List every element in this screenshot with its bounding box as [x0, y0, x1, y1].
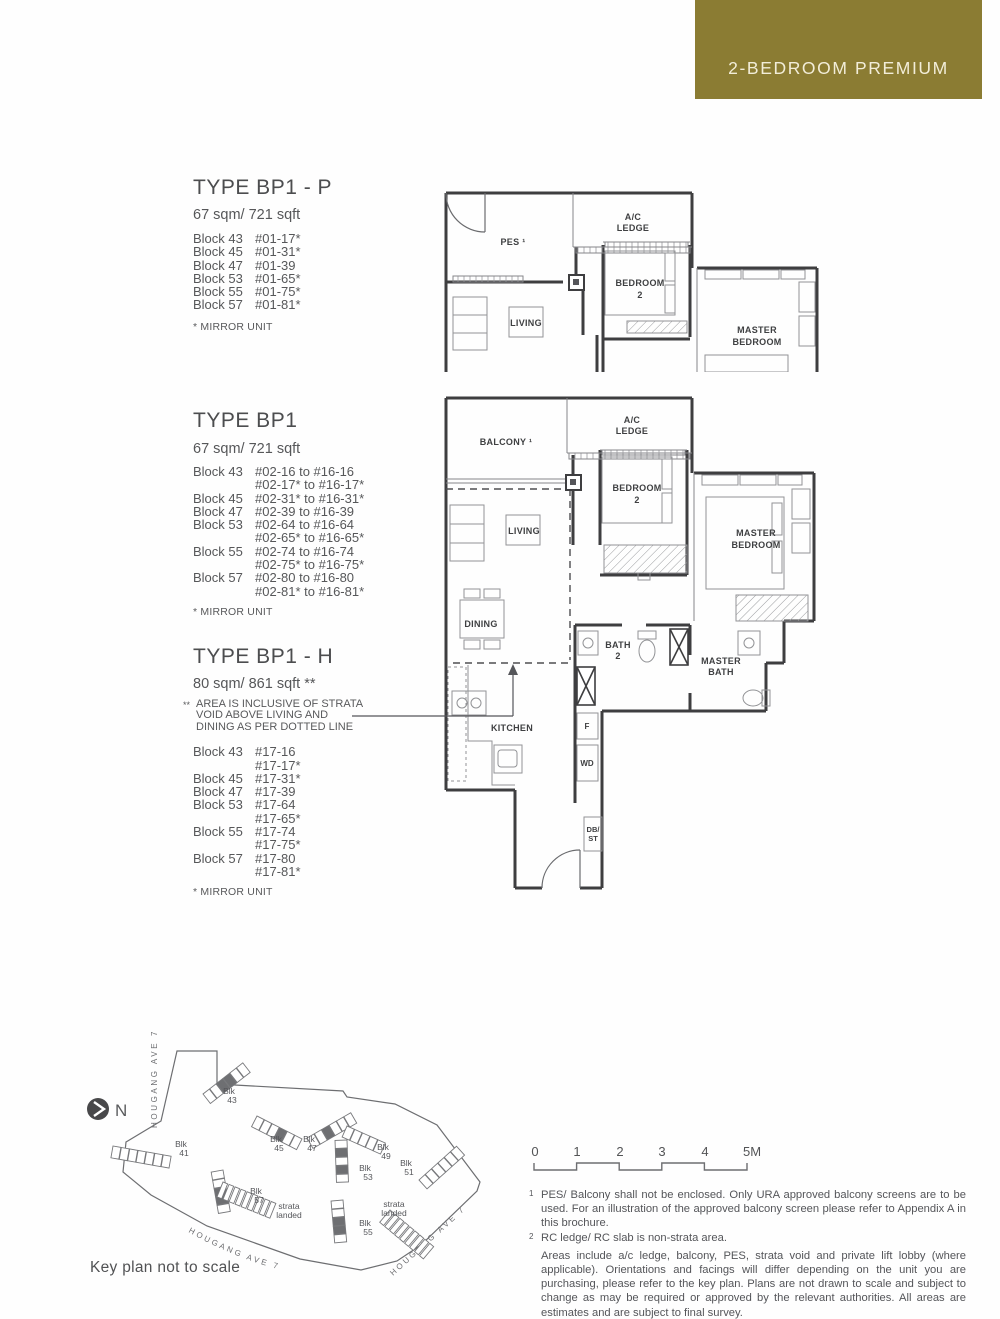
brochure-page: 2-BEDROOM PREMIUM TYPE BP1 - P 67 sqm/ 7… — [0, 0, 1000, 1319]
unit-number: #17-16 — [255, 745, 403, 758]
room-label-balcony: BALCONY ¹ — [480, 437, 533, 447]
entry-door-arc — [542, 850, 580, 888]
room-label-bath2: BATH2 — [605, 640, 631, 661]
unit-block-label: Block 57 — [193, 571, 255, 584]
room-label-bedroom2: BEDROOM2 — [612, 483, 661, 505]
unit-number: #17-75* — [255, 838, 403, 851]
room-label-master-bedroom: MASTERBEDROOM — [731, 528, 780, 550]
mirror-unit-note: * MIRROR UNIT — [193, 606, 403, 618]
type-bp1p-section: TYPE BP1 - P 67 sqm/ 721 sqft Block 43 #… — [193, 176, 403, 333]
label-fridge: F — [585, 722, 590, 731]
unit-number: #17-17* — [255, 759, 403, 772]
unit-block-label: Block 57 — [193, 298, 255, 311]
unit-number: #17-81* — [255, 865, 403, 878]
label-washer-dryer: WD — [580, 759, 594, 768]
footnote-text: Areas include a/c ledge, balcony, PES, s… — [541, 1250, 966, 1319]
unit-block-label: Block 43 — [193, 232, 255, 245]
unit-block-label — [193, 759, 255, 772]
strata-void-leader-arrow — [348, 655, 528, 725]
unit-number: #02-31* to #16-31* — [255, 492, 403, 505]
mirror-unit-note: * MIRROR UNIT — [193, 321, 403, 333]
room-label-master-bath: MASTERBATH — [701, 656, 741, 677]
mirror-unit-note: * MIRROR UNIT — [183, 886, 403, 898]
room-label-ac-ledge: A/CLEDGE — [616, 415, 649, 436]
unit-number: #02-80 to #16-80 — [255, 571, 403, 584]
unit-type-badge-label: 2-BEDROOM PREMIUM — [728, 58, 949, 79]
strata-landed-label: stratalanded — [381, 1199, 407, 1218]
room-label-dining: DINING — [464, 619, 497, 629]
unit-number: #17-80 — [255, 852, 403, 865]
unit-list: Block 43 #17-16 #17-17* Block 45 #17-31*… — [183, 745, 403, 878]
scale-label: 3 — [658, 1144, 665, 1159]
room-label-ac-ledge: A/CLEDGE — [617, 212, 650, 233]
unit-type-badge: 2-BEDROOM PREMIUM — [695, 0, 982, 99]
unit-block-label — [193, 838, 255, 851]
door-marker — [566, 475, 581, 490]
room-label-master-bedroom: MASTERBEDROOM — [732, 325, 781, 347]
unit-block-label: Block 53 — [193, 798, 255, 811]
type-title: TYPE BP1 - P — [193, 176, 403, 200]
unit-block-label: Block 57 — [193, 852, 255, 865]
unit-block-label — [193, 478, 255, 491]
block-label-41: Blk41 — [175, 1139, 189, 1158]
footnote-general: Areas include a/c ledge, balcony, PES, s… — [528, 1249, 966, 1319]
room-label-living: LIVING — [508, 526, 540, 536]
unit-block-label: Block 45 — [193, 772, 255, 785]
unit-block-label: Block 45 — [193, 245, 255, 258]
room-label-living: LIVING — [510, 318, 542, 328]
unit-number: #02-39 to #16-39 — [255, 505, 403, 518]
type-bp1-section: TYPE BP1 67 sqm/ 721 sqft Block 43 #02-1… — [193, 409, 403, 618]
unit-number: #17-74 — [255, 825, 403, 838]
unit-block-label: Block 55 — [193, 285, 255, 298]
footnote-2: 2 RC ledge/ RC slab is non-strata area. — [528, 1231, 966, 1245]
unit-number: #02-81* to #16-81* — [255, 585, 403, 598]
footnote-text: RC ledge/ RC slab is non-strata area. — [541, 1232, 727, 1244]
unit-number: #17-65* — [255, 812, 403, 825]
road-label-hougang-ave7: HOUGANG AVE 7 — [150, 1030, 159, 1128]
unit-block-label: Block 53 — [193, 518, 255, 531]
scale-label: 4 — [701, 1144, 708, 1159]
unit-number: #17-64 — [255, 798, 403, 811]
scale-bar: 0 1 2 3 4 5M — [533, 1144, 783, 1178]
floorplan-bp1p-drawing: PES ¹ A/CLEDGE BEDROOM2 LIVING MASTERBED… — [443, 185, 833, 372]
door-marker — [569, 275, 584, 290]
scale-label: 1 — [573, 1144, 580, 1159]
scale-label: 0 — [531, 1144, 538, 1159]
north-label: N — [115, 1101, 127, 1120]
unit-number: #01-65* — [255, 272, 403, 285]
block-label-43: Blk43 — [223, 1086, 237, 1105]
unit-block-label — [193, 865, 255, 878]
unit-number: #02-74 to #16-74 — [255, 545, 403, 558]
unit-number: #02-75* to #16-75* — [255, 558, 403, 571]
scale-label: 5M — [743, 1144, 761, 1159]
unit-number: #02-17* to #16-17* — [255, 478, 403, 491]
unit-number: #01-31* — [255, 245, 403, 258]
unit-number: #02-65* to #16-65* — [255, 531, 403, 544]
block-label-51: Blk51 — [400, 1158, 414, 1177]
room-label-pes: PES ¹ — [500, 237, 525, 247]
unit-number: #01-75* — [255, 285, 403, 298]
unit-number: #17-31* — [255, 772, 403, 785]
type-area: 67 sqm/ 721 sqft — [193, 441, 403, 457]
footnote-1: 1 PES/ Balcony shall not be enclosed. On… — [528, 1188, 966, 1231]
unit-block-label: Block 43 — [193, 745, 255, 758]
unit-block-label: Block 55 — [193, 545, 255, 558]
scale-bar-rule — [533, 1160, 753, 1180]
unit-number: #01-39 — [255, 259, 403, 272]
key-plan: N HOUGANG AVE 7 HOUGANG AVE 7 HOUGANG AV… — [85, 1030, 515, 1290]
unit-block-label: Block 45 — [193, 492, 255, 505]
footnote-sup: 1 — [529, 1187, 533, 1201]
pes-door-arc — [446, 193, 485, 232]
floorplan-bp1-drawing: BALCONY ¹ A/CLEDGE BEDROOM2 LIVING MASTE… — [440, 393, 840, 893]
unit-list: Block 43 #02-16 to #16-16 #02-17* to #16… — [193, 465, 403, 598]
north-arrow-icon — [87, 1098, 109, 1120]
footnotes: 1 PES/ Balcony shall not be enclosed. On… — [528, 1188, 966, 1319]
unit-block-label — [193, 558, 255, 571]
note-marker: ** — [183, 699, 196, 733]
unit-block-label — [193, 585, 255, 598]
unit-block-label: Block 55 — [193, 825, 255, 838]
footnote-sup: 2 — [529, 1230, 533, 1244]
block-label-53: Blk53 — [359, 1163, 373, 1182]
strata-landed-label: stratalanded — [276, 1201, 302, 1220]
room-label-bedroom2: BEDROOM2 — [615, 278, 664, 300]
unit-number: #02-16 to #16-16 — [255, 465, 403, 478]
service-shaft — [577, 629, 688, 705]
note-text: AREA IS INCLUSIVE OF STRATA VOID ABOVE L… — [196, 699, 364, 733]
unit-block-label: Block 43 — [193, 465, 255, 478]
unit-block-label: Block 47 — [193, 259, 255, 272]
unit-number: #01-81* — [255, 298, 403, 311]
scale-label: 2 — [616, 1144, 623, 1159]
unit-number: #01-17* — [255, 232, 403, 245]
type-title: TYPE BP1 — [193, 409, 403, 433]
unit-block-label — [193, 812, 255, 825]
unit-number: #02-64 to #16-64 — [255, 518, 403, 531]
unit-block-label: Block 47 — [193, 505, 255, 518]
block-label-55: Blk55 — [359, 1218, 373, 1237]
label-db-store: DB/ST — [587, 825, 601, 843]
unit-block-label: Block 47 — [193, 785, 255, 798]
unit-number: #17-39 — [255, 785, 403, 798]
unit-block-label: Block 53 — [193, 272, 255, 285]
unit-list: Block 43 #01-17* Block 45 #01-31* Block … — [193, 232, 403, 312]
footnote-text: PES/ Balcony shall not be enclosed. Only… — [541, 1189, 966, 1229]
furniture — [448, 457, 810, 851]
unit-block-label — [193, 531, 255, 544]
block-label-49: Blk49 — [377, 1142, 391, 1161]
key-plan-note: Key plan not to scale — [90, 1259, 240, 1277]
type-area: 67 sqm/ 721 sqft — [193, 207, 403, 223]
